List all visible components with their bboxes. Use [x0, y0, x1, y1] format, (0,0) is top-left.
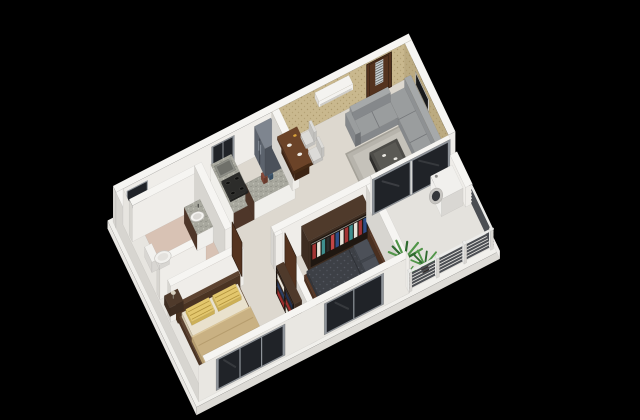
floor-plan-stage: [0, 0, 640, 420]
floor-plan-3d-render: [0, 0, 640, 420]
